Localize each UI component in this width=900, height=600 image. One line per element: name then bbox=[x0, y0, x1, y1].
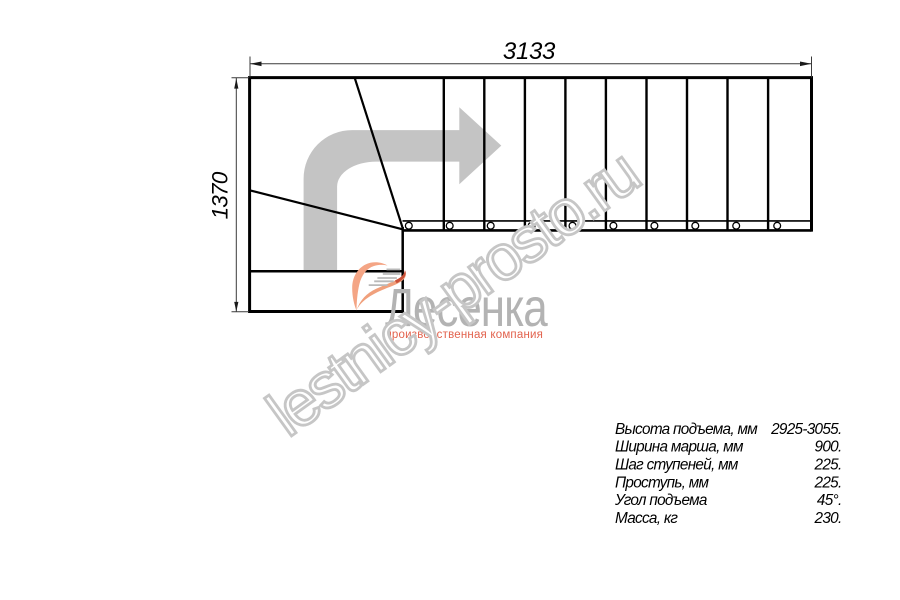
svg-text:Высота подъема, мм: Высота подъема, мм bbox=[615, 421, 758, 438]
svg-text:45°.: 45°. bbox=[817, 492, 842, 509]
svg-text:3133: 3133 bbox=[503, 38, 556, 65]
svg-text:900.: 900. bbox=[815, 439, 842, 456]
svg-text:1370: 1370 bbox=[208, 171, 233, 219]
svg-text:225.: 225. bbox=[814, 474, 842, 491]
svg-text:Шаг ступеней, мм: Шаг ступеней, мм bbox=[615, 457, 739, 474]
svg-text:225.: 225. bbox=[814, 457, 842, 474]
svg-text:Проступь, мм: Проступь, мм bbox=[615, 474, 710, 491]
svg-text:Угол подъема: Угол подъема bbox=[614, 492, 707, 509]
svg-text:230.: 230. bbox=[814, 510, 842, 527]
svg-text:Ширина марша, мм: Ширина марша, мм bbox=[615, 439, 744, 456]
svg-text:2925-3055.: 2925-3055. bbox=[770, 421, 841, 438]
svg-text:Масса, кг: Масса, кг bbox=[615, 510, 678, 527]
